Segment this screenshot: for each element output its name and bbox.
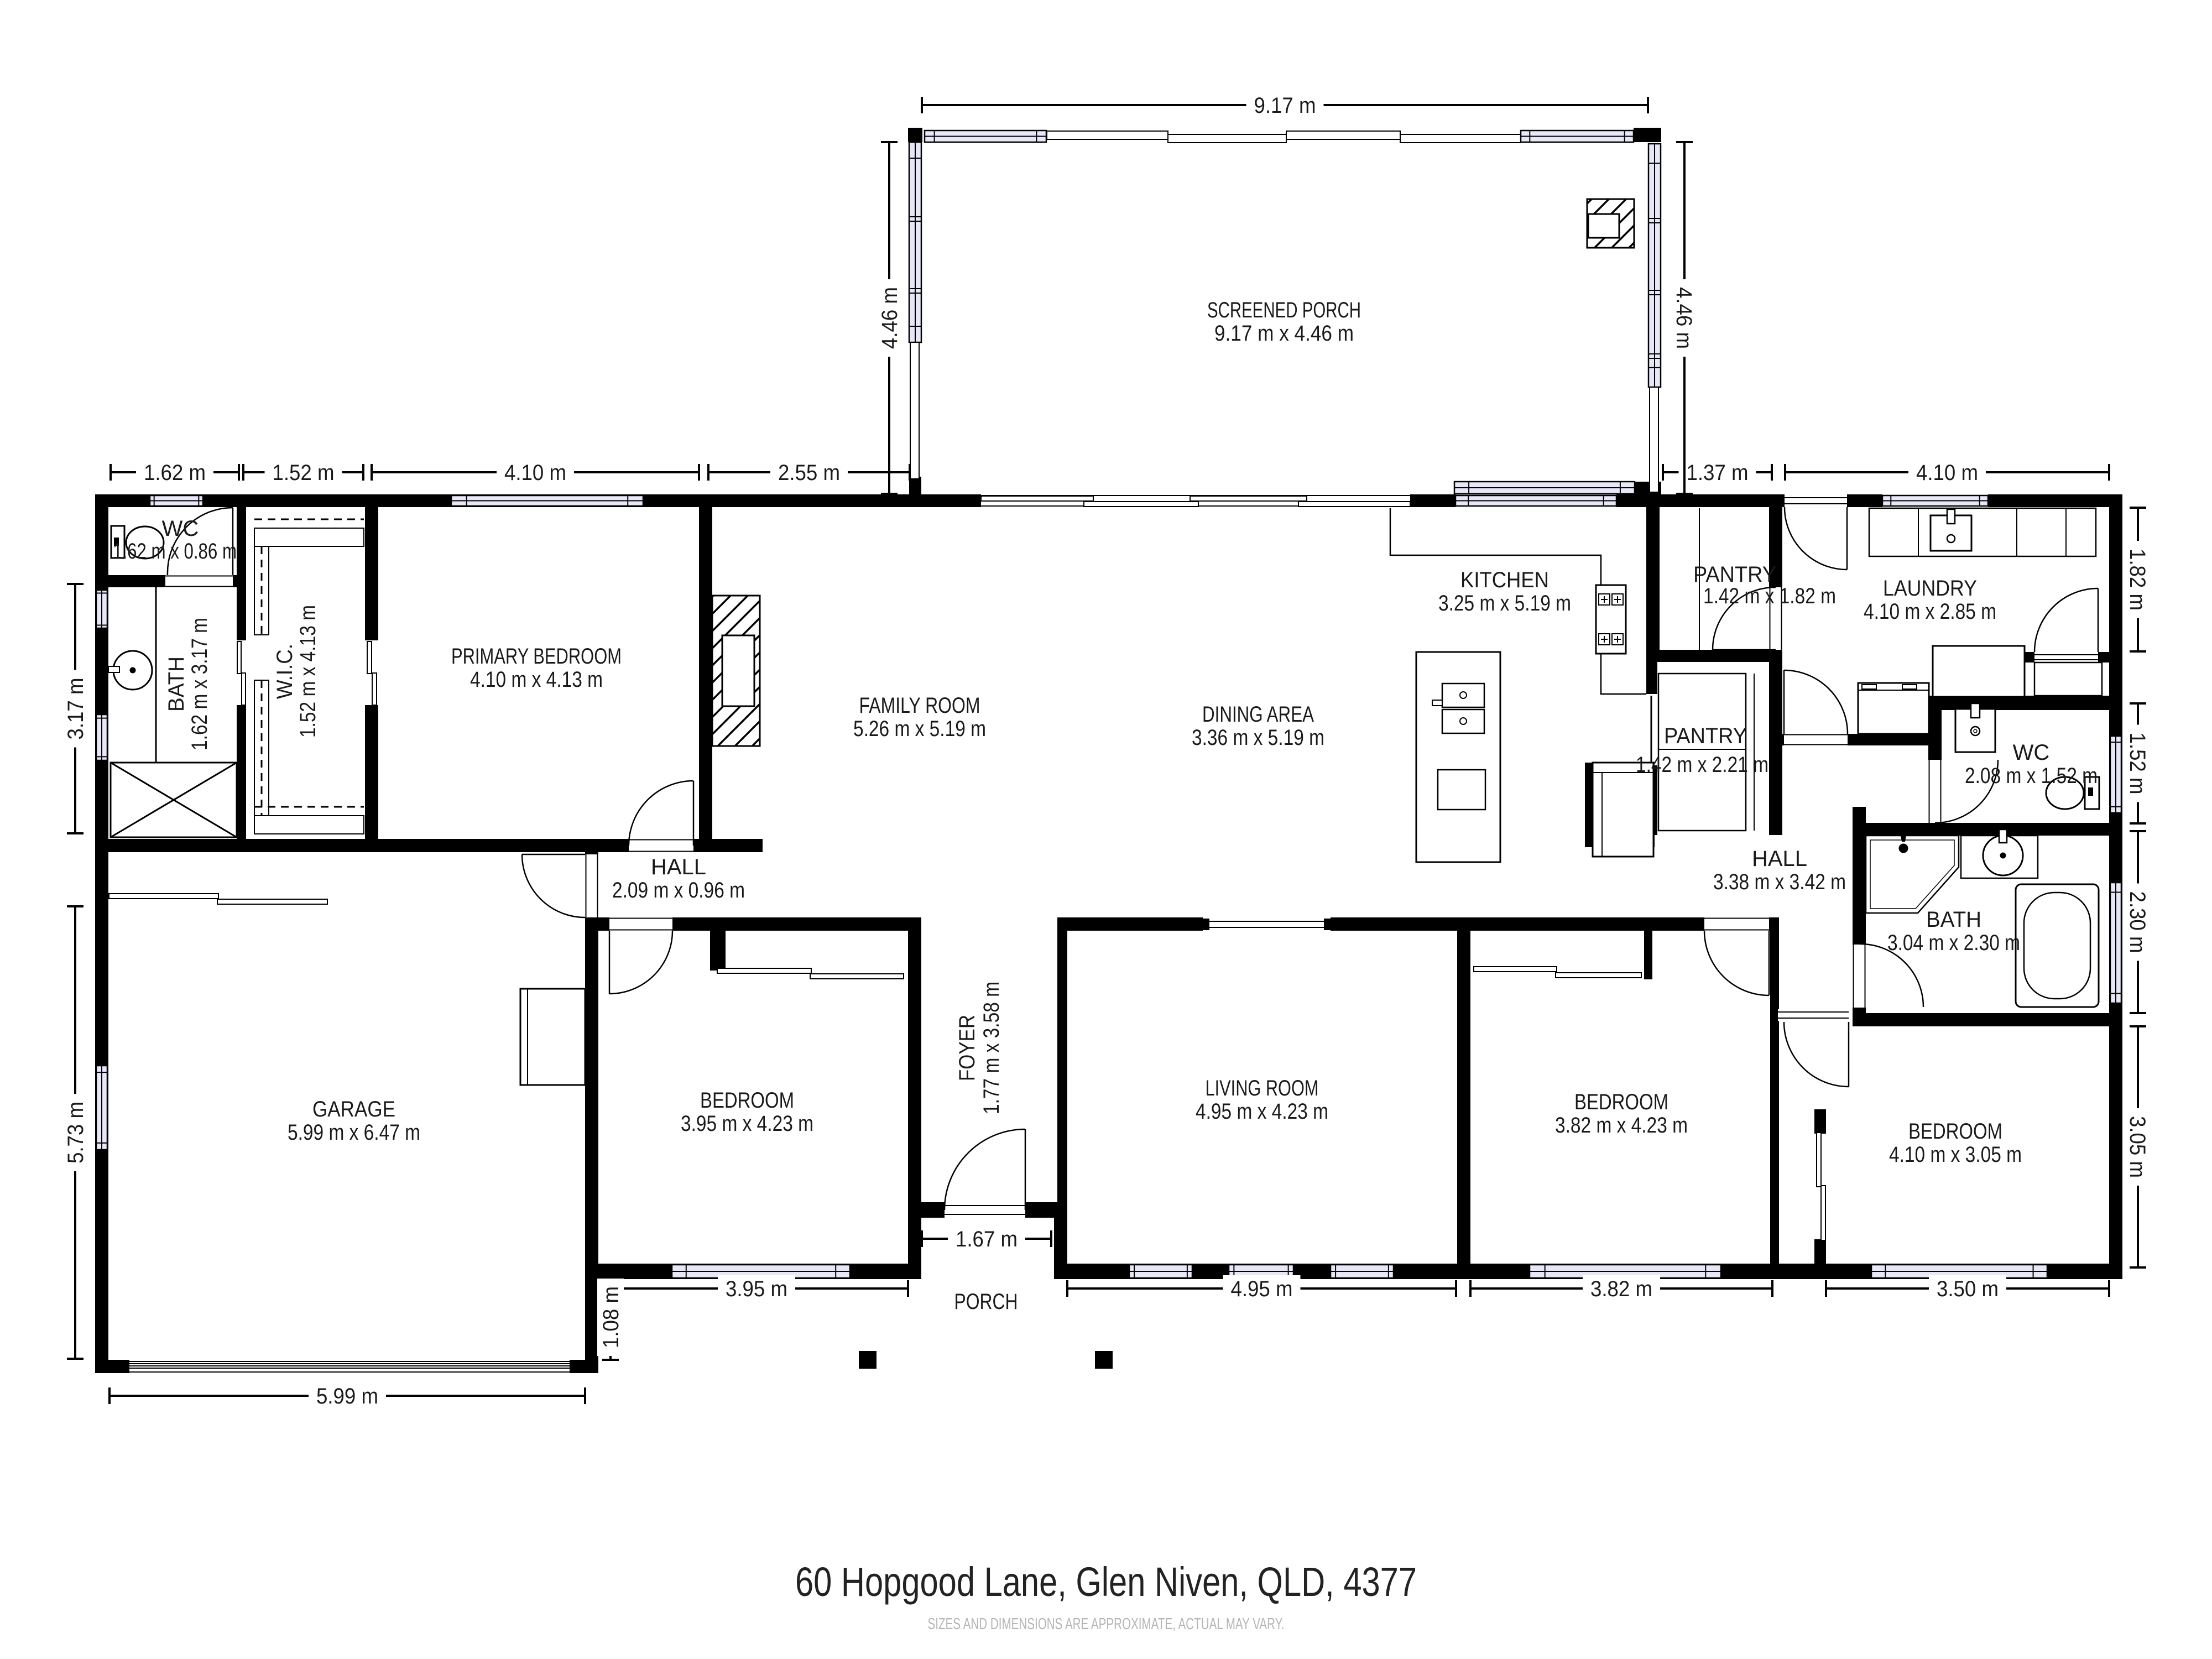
- svg-text:HALL: HALL: [651, 855, 706, 879]
- svg-text:BATH: BATH: [164, 656, 189, 712]
- svg-text:1.52 m: 1.52 m: [273, 461, 335, 485]
- svg-text:3.38 m x 3.42 m: 3.38 m x 3.42 m: [1713, 870, 1846, 894]
- svg-text:4.46 m: 4.46 m: [1672, 287, 1696, 349]
- svg-text:4.10 m: 4.10 m: [1916, 461, 1978, 485]
- svg-text:3.05 m: 3.05 m: [2125, 1116, 2150, 1178]
- svg-text:PANTRY: PANTRY: [1664, 724, 1747, 748]
- svg-text:W.I.C.: W.I.C.: [273, 644, 297, 699]
- svg-text:60 Hopgood Lane, Glen Niven, Q: 60 Hopgood Lane, Glen Niven, QLD, 4377: [795, 1559, 1417, 1605]
- svg-text:DINING AREA: DINING AREA: [1202, 702, 1314, 727]
- svg-text:PANTRY: PANTRY: [1693, 562, 1776, 587]
- svg-text:1.77 m x 3.58 m: 1.77 m x 3.58 m: [979, 982, 1004, 1114]
- svg-text:3.95 m x 4.23 m: 3.95 m x 4.23 m: [681, 1112, 813, 1136]
- svg-text:4.46 m: 4.46 m: [878, 287, 902, 349]
- svg-text:9.17 m: 9.17 m: [1254, 93, 1316, 118]
- svg-text:3.50 m: 3.50 m: [1937, 1277, 1999, 1301]
- svg-text:5.99 m: 5.99 m: [316, 1384, 378, 1408]
- svg-text:SIZES AND DIMENSIONS ARE APPRO: SIZES AND DIMENSIONS ARE APPROXIMATE, AC…: [928, 1615, 1285, 1633]
- svg-text:KITCHEN: KITCHEN: [1460, 568, 1549, 592]
- svg-text:5.26 m x 5.19 m: 5.26 m x 5.19 m: [853, 717, 986, 741]
- svg-text:9.17 m x 4.46 m: 9.17 m x 4.46 m: [1214, 321, 1354, 346]
- svg-text:GARAGE: GARAGE: [312, 1097, 395, 1121]
- svg-text:SCREENED PORCH: SCREENED PORCH: [1207, 298, 1361, 322]
- svg-text:1.52 m x 4.13 m: 1.52 m x 4.13 m: [296, 605, 320, 738]
- svg-text:5.73 m: 5.73 m: [64, 1102, 88, 1164]
- svg-text:3.04 m x 2.30 m: 3.04 m x 2.30 m: [1887, 931, 2020, 955]
- svg-text:1.62 m: 1.62 m: [144, 461, 206, 485]
- svg-text:LIVING ROOM: LIVING ROOM: [1206, 1076, 1319, 1100]
- svg-text:FAMILY ROOM: FAMILY ROOM: [859, 693, 980, 718]
- svg-text:WC: WC: [2013, 740, 2050, 765]
- svg-text:4.10 m: 4.10 m: [504, 461, 566, 485]
- svg-text:1.42 m x 1.82 m: 1.42 m x 1.82 m: [1703, 584, 1836, 608]
- svg-text:LAUNDRY: LAUNDRY: [1883, 576, 1977, 601]
- svg-text:PORCH: PORCH: [954, 1290, 1018, 1314]
- svg-text:PRIMARY BEDROOM: PRIMARY BEDROOM: [451, 644, 622, 669]
- svg-text:2.30 m: 2.30 m: [2125, 891, 2150, 953]
- svg-text:3.17 m: 3.17 m: [64, 678, 88, 740]
- svg-text:1.62 m x 0.86 m: 1.62 m x 0.86 m: [113, 539, 237, 564]
- svg-text:2.08 m x 1.52 m: 2.08 m x 1.52 m: [1965, 764, 2098, 788]
- svg-text:3.82 m x 4.23 m: 3.82 m x 4.23 m: [1555, 1113, 1688, 1138]
- svg-text:5.99 m x 6.47 m: 5.99 m x 6.47 m: [288, 1120, 420, 1145]
- svg-text:1.37 m: 1.37 m: [1687, 461, 1749, 485]
- svg-text:HALL: HALL: [1752, 847, 1807, 871]
- svg-text:4.10 m x 4.13 m: 4.10 m x 4.13 m: [470, 667, 603, 692]
- svg-text:1.67 m: 1.67 m: [956, 1227, 1018, 1251]
- svg-text:3.36 m x 5.19 m: 3.36 m x 5.19 m: [1192, 726, 1324, 750]
- svg-text:1.42 m x 2.21 m: 1.42 m x 2.21 m: [1636, 753, 1768, 777]
- svg-text:1.82 m: 1.82 m: [2125, 549, 2150, 611]
- svg-text:4.10 m x 3.05 m: 4.10 m x 3.05 m: [1889, 1142, 2022, 1167]
- svg-text:4.95 m x 4.23 m: 4.95 m x 4.23 m: [1196, 1099, 1328, 1124]
- svg-text:4.95 m: 4.95 m: [1231, 1277, 1293, 1301]
- svg-text:FOYER: FOYER: [955, 1015, 979, 1081]
- svg-text:BEDROOM: BEDROOM: [1574, 1090, 1668, 1114]
- svg-text:3.95 m: 3.95 m: [726, 1277, 787, 1301]
- svg-text:WC: WC: [162, 517, 199, 541]
- svg-text:2.55 m: 2.55 m: [778, 461, 840, 485]
- svg-text:1.08 m: 1.08 m: [599, 1286, 623, 1348]
- svg-text:BEDROOM: BEDROOM: [700, 1088, 794, 1113]
- svg-text:4.10 m x 2.85 m: 4.10 m x 2.85 m: [1864, 599, 1996, 624]
- svg-text:1.62 m x 3.17 m: 1.62 m x 3.17 m: [187, 618, 212, 750]
- svg-text:BEDROOM: BEDROOM: [1908, 1119, 2002, 1144]
- svg-text:3.25 m x 5.19 m: 3.25 m x 5.19 m: [1438, 591, 1571, 615]
- svg-text:2.09 m x 0.96 m: 2.09 m x 0.96 m: [612, 878, 745, 902]
- svg-text:BATH: BATH: [1926, 907, 1981, 932]
- svg-text:1.52 m: 1.52 m: [2125, 733, 2150, 795]
- svg-text:3.82 m: 3.82 m: [1590, 1277, 1652, 1301]
